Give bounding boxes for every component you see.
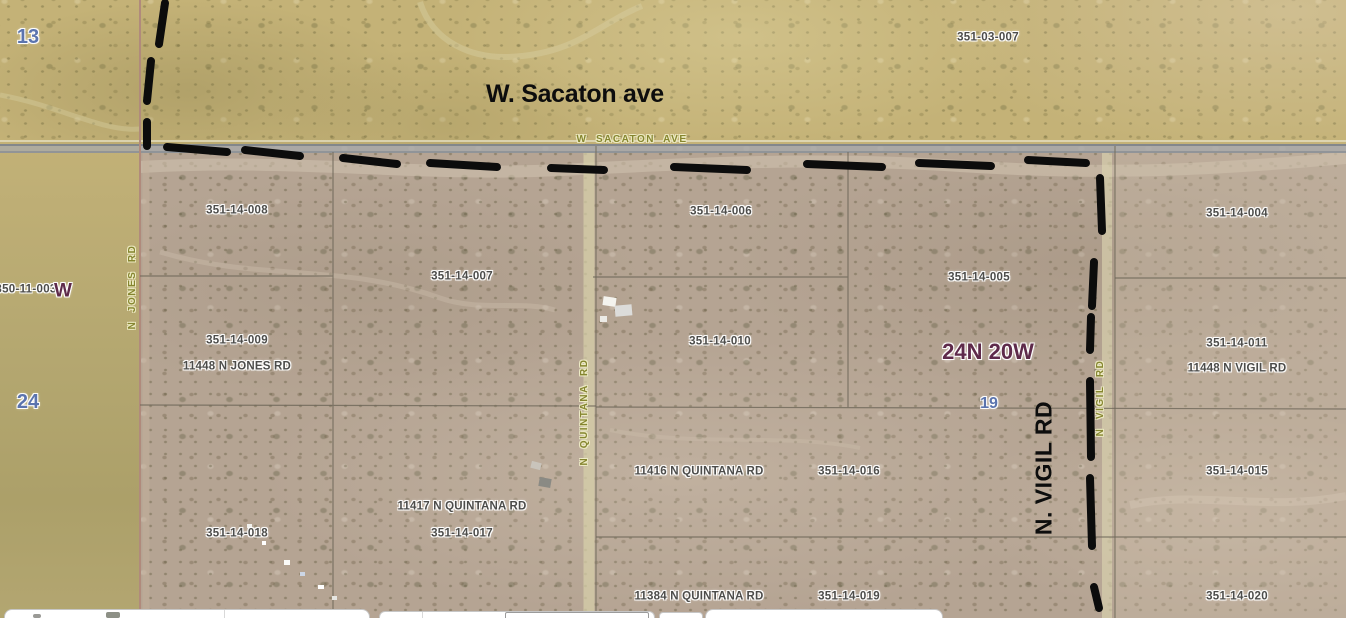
parcel-label: 351-14-015 (1206, 466, 1268, 478)
section-label: 13 (17, 27, 39, 47)
building (318, 585, 324, 589)
vigil-road-annotation: N. VIGIL RD (1031, 401, 1058, 535)
address-label: 11448 N VIGIL RD (1188, 363, 1287, 375)
roadlbl-label: N VIGIL RD (1096, 360, 1106, 437)
township-label: 24N 20W (942, 341, 1034, 363)
section-label: 24 (17, 392, 39, 412)
address-label: 11448 N JONES RD (183, 361, 291, 373)
terrain-desert-north (0, 0, 1346, 146)
toolbar-button[interactable] (659, 612, 703, 618)
terrain-desert-west-strip (0, 146, 140, 618)
map-viewport[interactable]: 351-03-007350-11-003351-14-008351-14-006… (0, 0, 1346, 618)
parcel-label: 351-14-011 (1206, 338, 1267, 350)
parcel-label: 351-14-016 (818, 466, 880, 478)
parcel-label: 351-14-018 (206, 528, 268, 540)
toolbar-select[interactable] (505, 612, 649, 618)
building (600, 316, 607, 322)
parcel-label: 351-14-017 (431, 528, 493, 540)
parcel-label: 351-14-010 (689, 336, 751, 348)
roadlbl-label: N QUINTANA RD (580, 359, 590, 466)
parcel-label: 351-14-009 (206, 335, 268, 347)
parcel-label: 351-03-007 (957, 32, 1019, 44)
address-label: 11417 N QUINTANA RD (397, 501, 526, 513)
township-label: W (54, 282, 72, 301)
building (262, 541, 266, 545)
parcel-label: 351-14-006 (690, 206, 752, 218)
sacaton-avenue-annotation: W. Sacaton ave (486, 80, 664, 109)
parcel-label: 351-14-004 (1206, 208, 1268, 220)
address-label: 11384 N QUINTANA RD (634, 591, 763, 603)
toolbar-divider (422, 612, 423, 618)
roadlbl-label: W SACATON AVE (576, 135, 687, 145)
parcel-label: 351-14-019 (818, 591, 880, 603)
building (300, 572, 305, 576)
parcel-label: 351-14-005 (948, 272, 1010, 284)
section-label: 19 (980, 396, 998, 412)
building (332, 596, 337, 600)
bottom-toolbar-panel-left[interactable] (4, 609, 370, 618)
building (284, 560, 290, 565)
parcel-label: 351-14-008 (206, 205, 268, 217)
bottom-toolbar-panel-right[interactable] (705, 609, 943, 618)
parcel-label: 350-11-003 (0, 284, 57, 296)
parcel-label: 351-14-020 (1206, 591, 1268, 603)
toolbar-divider (224, 610, 225, 618)
toolbar-icon[interactable] (33, 614, 41, 618)
roadlbl-label: N JONES RD (128, 245, 138, 330)
address-label: 11416 N QUINTANA RD (634, 466, 763, 478)
parcel-label: 351-14-007 (431, 271, 493, 283)
building (615, 304, 633, 316)
toolbar-icon[interactable] (106, 612, 120, 618)
building (538, 477, 551, 488)
